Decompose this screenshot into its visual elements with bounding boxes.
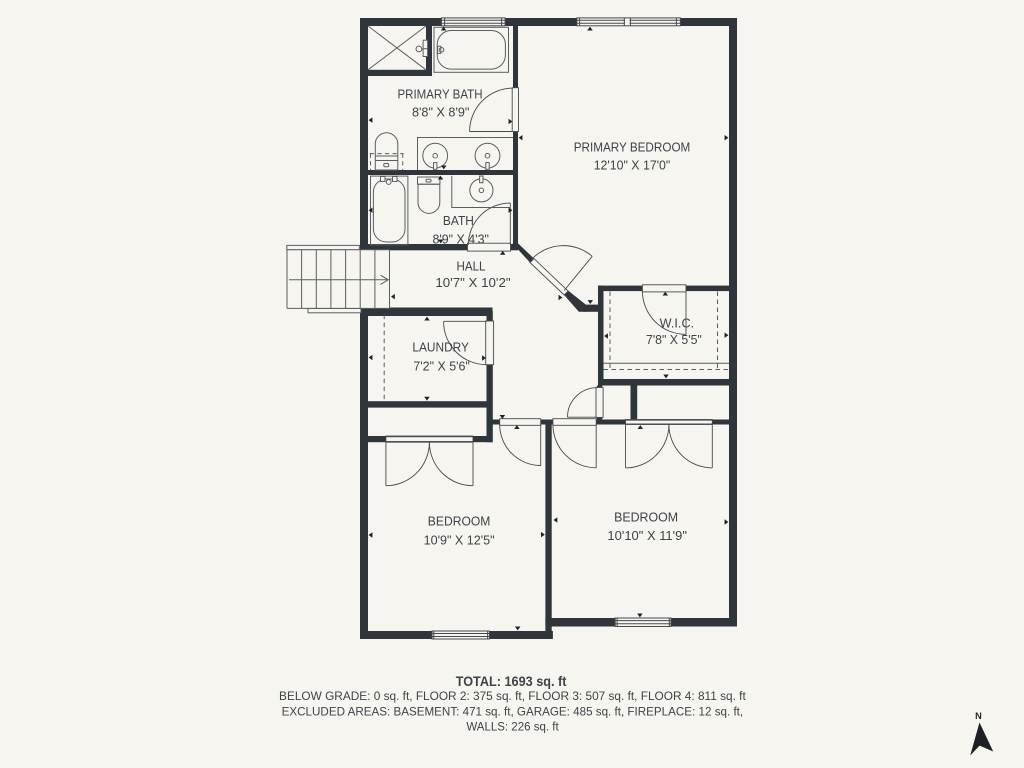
svg-text:TOTAL: 1693 sq. ft: TOTAL: 1693 sq. ft	[456, 674, 567, 689]
svg-text:10'9" X 12'5": 10'9" X 12'5"	[424, 533, 495, 548]
svg-text:EXCLUDED AREAS: BASEMENT: 471: EXCLUDED AREAS: BASEMENT: 471 sq. ft, GA…	[282, 705, 744, 719]
svg-text:HALL: HALL	[457, 260, 486, 274]
svg-text:BELOW GRADE: 0 sq. ft, FLOOR 2: BELOW GRADE: 0 sq. ft, FLOOR 2: 375 sq. …	[279, 689, 746, 703]
svg-text:10'7" X 10'2": 10'7" X 10'2"	[435, 275, 510, 290]
svg-text:WALLS: 226 sq. ft: WALLS: 226 sq. ft	[466, 720, 559, 734]
svg-text:12'10" X 17'0": 12'10" X 17'0"	[594, 158, 671, 173]
svg-text:PRIMARY BATH: PRIMARY BATH	[398, 88, 483, 102]
svg-text:7'8" X 5'5": 7'8" X 5'5"	[646, 332, 702, 347]
svg-text:N: N	[975, 711, 982, 721]
svg-text:BATH: BATH	[443, 214, 474, 228]
svg-text:LAUNDRY: LAUNDRY	[412, 341, 469, 355]
svg-text:PRIMARY BEDROOM: PRIMARY BEDROOM	[574, 141, 691, 155]
svg-text:W.I.C.: W.I.C.	[660, 317, 694, 331]
svg-text:8'8" X 8'9": 8'8" X 8'9"	[412, 105, 470, 120]
svg-text:8'9" X 4'3": 8'9" X 4'3"	[432, 231, 489, 246]
svg-text:10'10" X 11'9": 10'10" X 11'9"	[607, 528, 687, 543]
svg-text:BEDROOM: BEDROOM	[614, 511, 678, 525]
svg-text:7'2" X 5'6": 7'2" X 5'6"	[413, 359, 470, 374]
svg-text:BEDROOM: BEDROOM	[428, 515, 491, 529]
